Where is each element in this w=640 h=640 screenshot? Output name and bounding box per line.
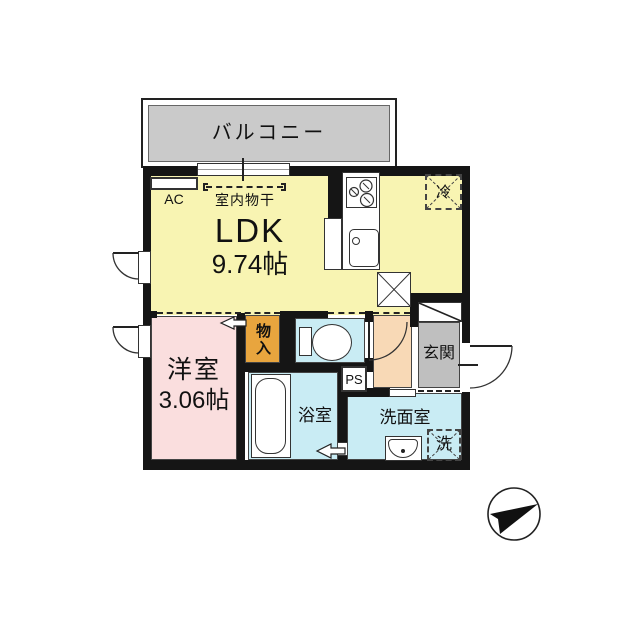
western-room-size-label: 3.06帖 [151, 387, 237, 415]
bathroom-label: 浴室 [288, 405, 342, 425]
wall-bottom [143, 460, 470, 470]
washroom-door-opening [389, 389, 416, 397]
wall-top [143, 166, 470, 176]
refrigerator-label: 冷 [425, 174, 462, 210]
toilet-bowl-icon [312, 324, 352, 361]
ac-label: AC [152, 191, 196, 207]
wall-right [462, 166, 470, 470]
toilet-tank-icon [299, 327, 312, 356]
entrance-step-box [418, 302, 462, 322]
pipe-space-label: PS [341, 366, 367, 392]
compass-icon [488, 488, 540, 540]
kitchen-faucet-icon [352, 237, 360, 245]
floor-plan: バルコニー AC 室内物干 LDK 9.74帖 冷 洋室 3.06帖 物入 PS… [0, 0, 640, 640]
indoor-drying-label: 室内物干 [203, 192, 287, 208]
indoor-drying-rack-right-cap [281, 183, 286, 191]
balcony-label: バルコニー [141, 121, 397, 145]
opening-toilet-top [328, 312, 365, 314]
entrance-label: 玄関 [418, 344, 460, 364]
washer-label: 洗 [427, 429, 461, 461]
wall-closet-toilet [280, 311, 295, 363]
washroom-sink-drain [401, 449, 405, 453]
opening-western-sliding [157, 312, 280, 314]
wall-western-right [237, 313, 245, 460]
opening-entrance-step [418, 390, 460, 392]
wall-kitchen-stub [328, 176, 342, 218]
entrance-door-opening [462, 343, 470, 392]
opening-hallway-top [373, 312, 410, 314]
stove-icon [346, 177, 377, 208]
wall-left [143, 166, 151, 470]
closet-label: 物入 [245, 317, 280, 363]
western-room-label: 洋室 [151, 356, 237, 384]
indoor-drying-rack-left-cap [203, 183, 208, 191]
ac-unit [150, 177, 198, 190]
washroom-label: 洗面室 [370, 407, 440, 427]
window-ldk-left [138, 251, 151, 284]
wall-bath-right-stub [338, 456, 347, 462]
ldk-label: LDK [180, 212, 320, 248]
wall-entrance-left-stub [410, 293, 418, 327]
wall-toilet-door-stub-bottom [365, 358, 373, 365]
toilet-door-opening [365, 322, 373, 358]
kitchen-counter-side [324, 218, 342, 270]
wall-toilet-door-stub-top [365, 311, 373, 322]
kitchen-sink-icon [349, 229, 379, 267]
bathtub-icon [255, 378, 286, 454]
room-hallway [373, 315, 412, 388]
indoor-drying-rack [206, 186, 283, 188]
window-balcony-center-tick [242, 158, 244, 181]
counter-x-space [377, 272, 411, 307]
ldk-size-label: 9.74帖 [180, 249, 320, 279]
bathroom-door-opening [338, 442, 347, 456]
window-western-left [138, 325, 151, 358]
